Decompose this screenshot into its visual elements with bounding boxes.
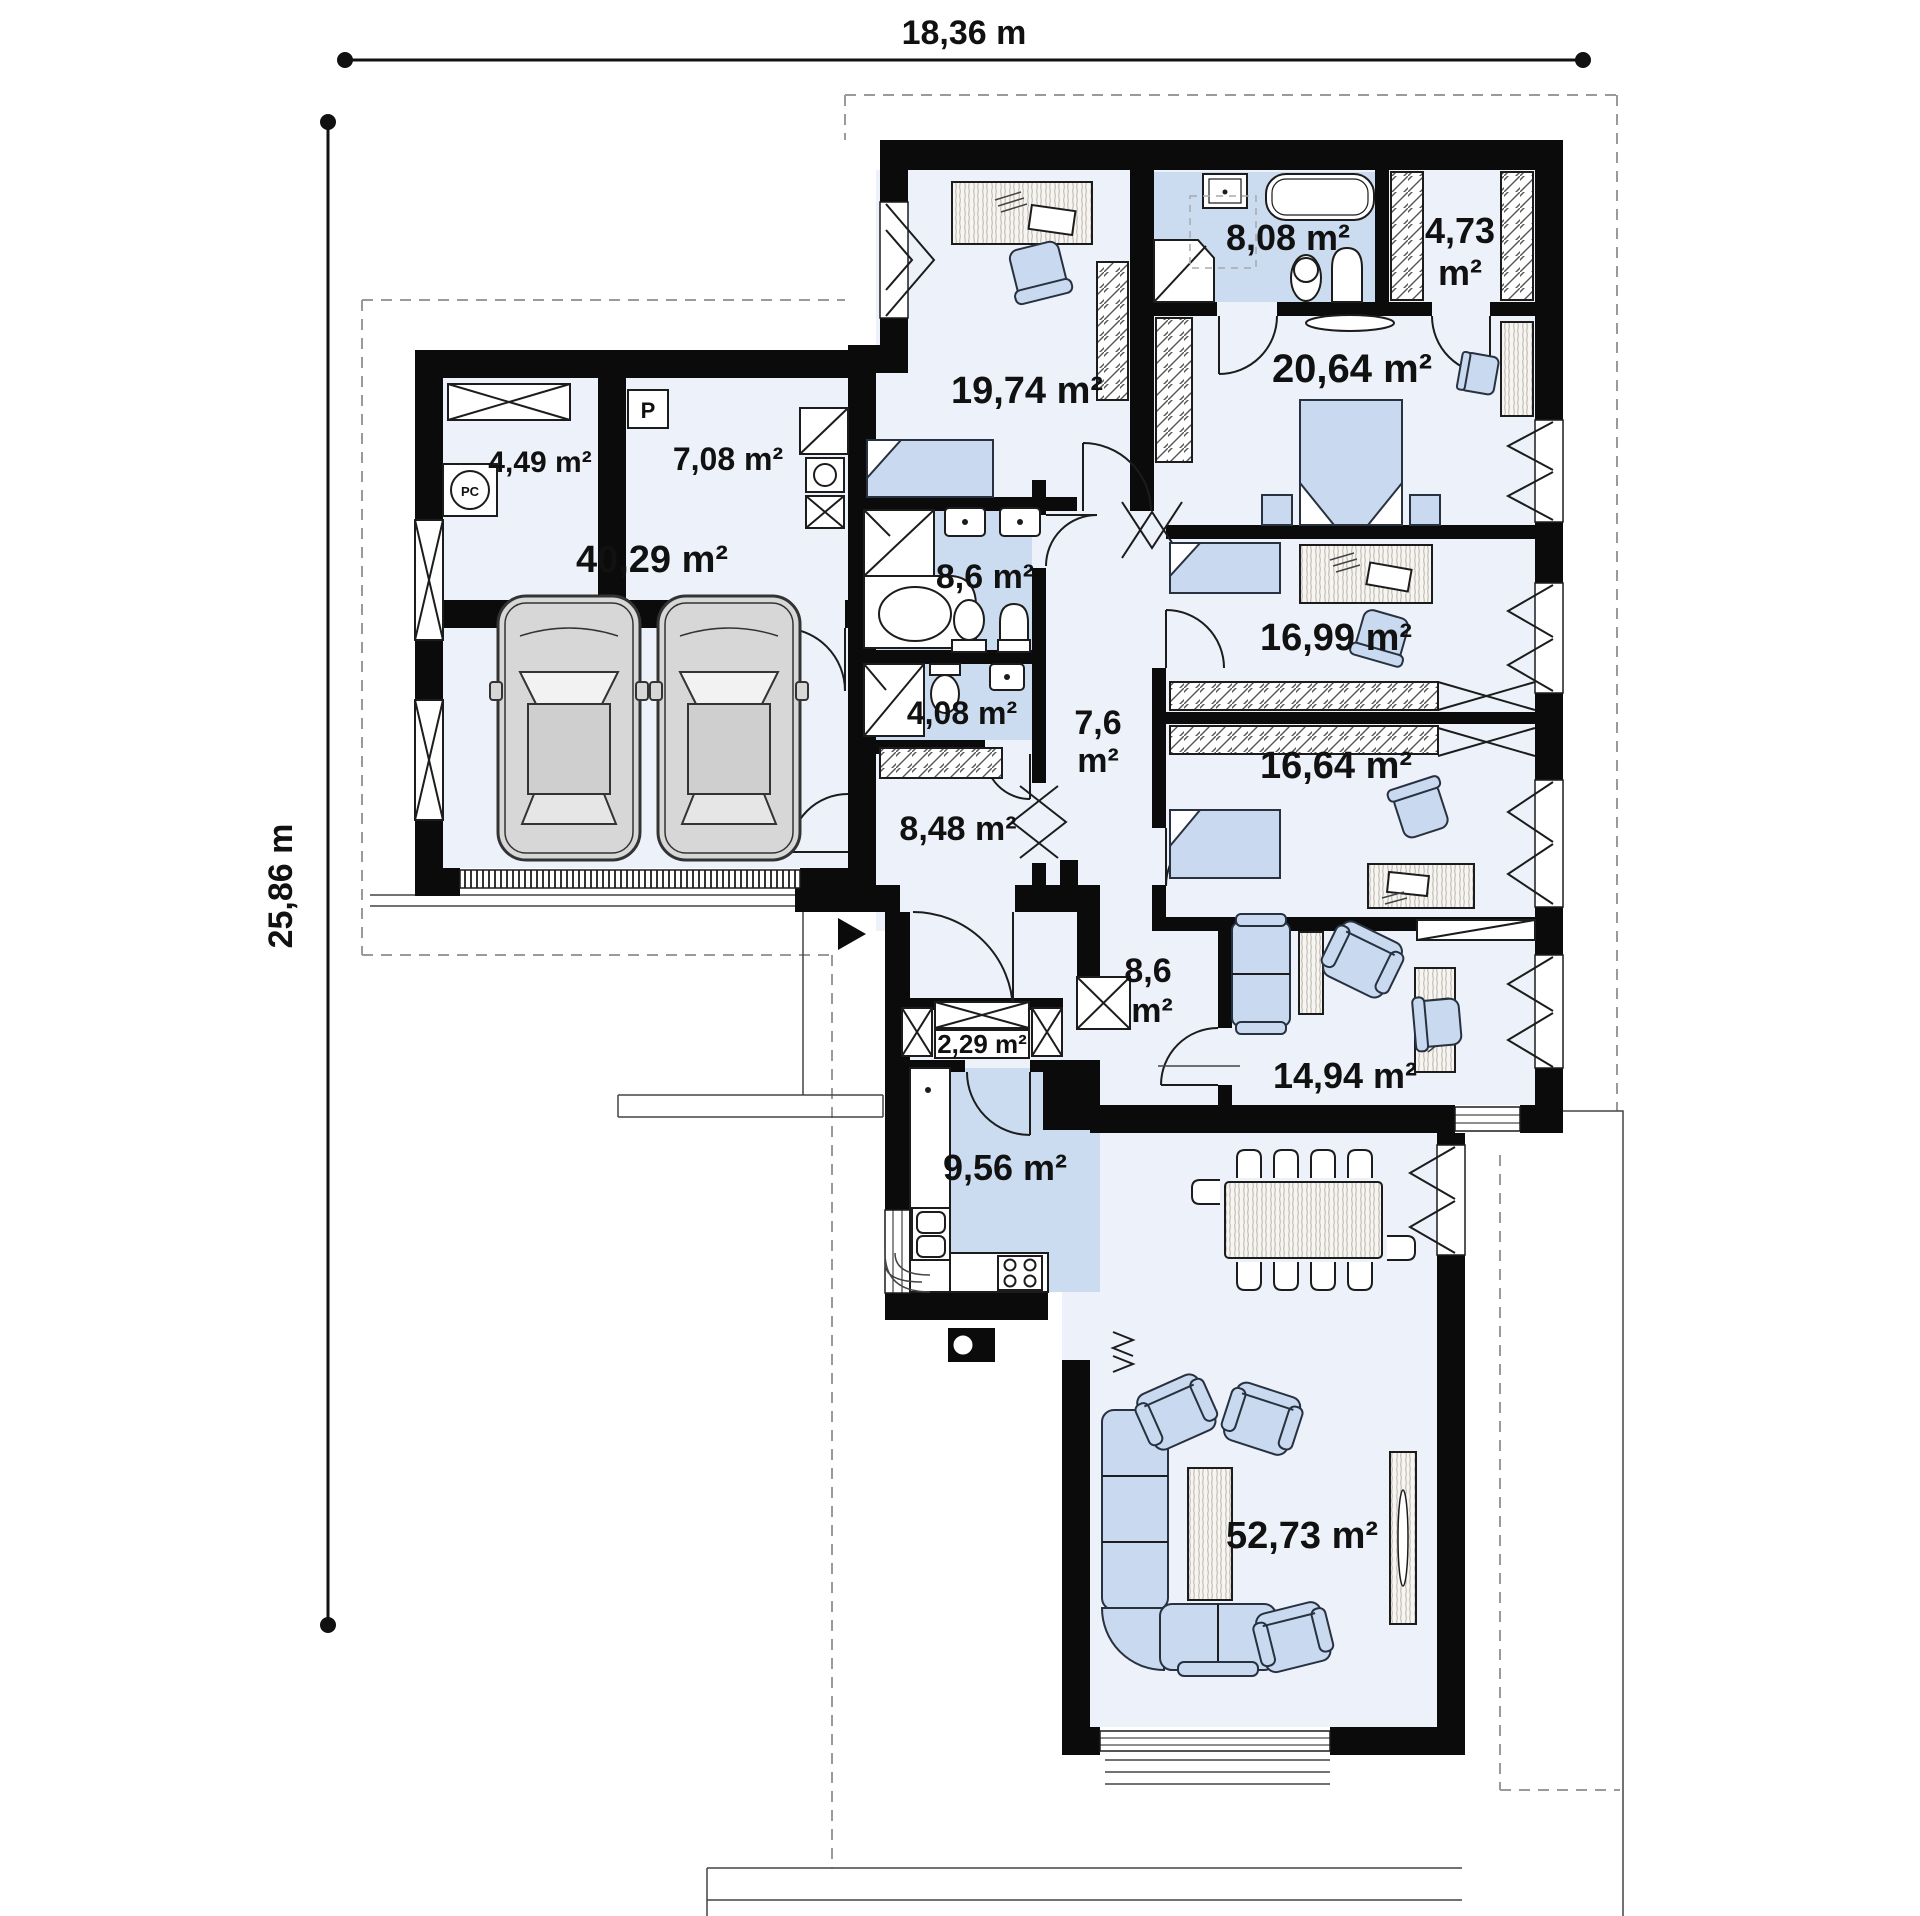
- dimension-depth-label: 25,86 m: [262, 824, 300, 949]
- parking-label: P: [641, 398, 656, 423]
- dimension-left: 25,86 m: [262, 114, 336, 1633]
- room-label-bedroom-1: 19,74 m²: [951, 370, 1103, 412]
- room-label-hall-upper-unit: m²: [1077, 742, 1119, 780]
- room-label-utility: 4,49 m²: [488, 446, 591, 479]
- kitchen-sink-icon: [912, 1208, 950, 1260]
- dimension-width-label: 18,36 m: [902, 14, 1027, 52]
- room-label-hall-entry: 8,6: [1124, 952, 1171, 990]
- room-label-office: 14,94 m²: [1273, 1055, 1417, 1096]
- bidet-icon: [998, 604, 1030, 652]
- room-label-wc: 4,08 m²: [907, 695, 1017, 731]
- room-label-kitchen: 9,56 m²: [943, 1147, 1067, 1188]
- dimension-top: 18,36 m: [337, 14, 1591, 68]
- room-label-hall-upper: 7,6: [1074, 704, 1121, 742]
- shelf-icon: [1306, 315, 1394, 331]
- room-label-bathroom-main: 8,08 m²: [1226, 217, 1350, 258]
- room-label-bathroom-2: 8,6 m²: [936, 558, 1034, 596]
- room-label-hall-entry-unit: m²: [1131, 992, 1173, 1030]
- floor-plan-page: PC P: [0, 0, 1920, 1916]
- room-label-garage: 40,29 m²: [576, 539, 728, 581]
- nightstand-icon: [1410, 495, 1440, 525]
- room-label-wardrobe-unit: m²: [1438, 252, 1482, 293]
- fireplace-icon: [954, 1336, 972, 1354]
- garage-gate: [460, 870, 800, 888]
- nightstand-icon: [1262, 495, 1292, 525]
- tv-cabinet-icon: [1390, 1452, 1416, 1624]
- toilet-icon: [1291, 255, 1321, 301]
- terrace-outline-right: [1448, 1111, 1623, 1916]
- room-label-corridor: 8,48 m²: [899, 810, 1016, 848]
- floor-plan-svg: PC P: [0, 0, 1920, 1916]
- terrace-dash: [1500, 1155, 1620, 1790]
- room-label-wardrobe: 4,73: [1425, 210, 1495, 251]
- room-label-bedroom-3: 16,64 m²: [1260, 745, 1412, 787]
- desk-icon: [1300, 545, 1432, 603]
- boiler-label: PC: [461, 484, 480, 499]
- entrance-arrow-icon: [838, 918, 866, 950]
- terrace-outline-bottom: [707, 1868, 1462, 1916]
- room-label-living: 52,73 m²: [1226, 1515, 1378, 1557]
- room-label-bedroom-2: 16,99 m²: [1260, 617, 1412, 659]
- room-label-pantry: 2,29 m²: [937, 1029, 1027, 1059]
- bathtub-icon: [1266, 174, 1374, 220]
- stove-icon: [998, 1256, 1042, 1290]
- room-label-master: 20,64 m²: [1272, 347, 1432, 391]
- room-label-storage: 7,08 m²: [673, 441, 783, 477]
- coffee-table-icon: [1299, 932, 1323, 1014]
- dresser-icon: [1501, 322, 1533, 416]
- driveway-lines: [370, 895, 795, 906]
- dining-table-icon: [1225, 1182, 1382, 1258]
- toilet-icon: [952, 600, 986, 652]
